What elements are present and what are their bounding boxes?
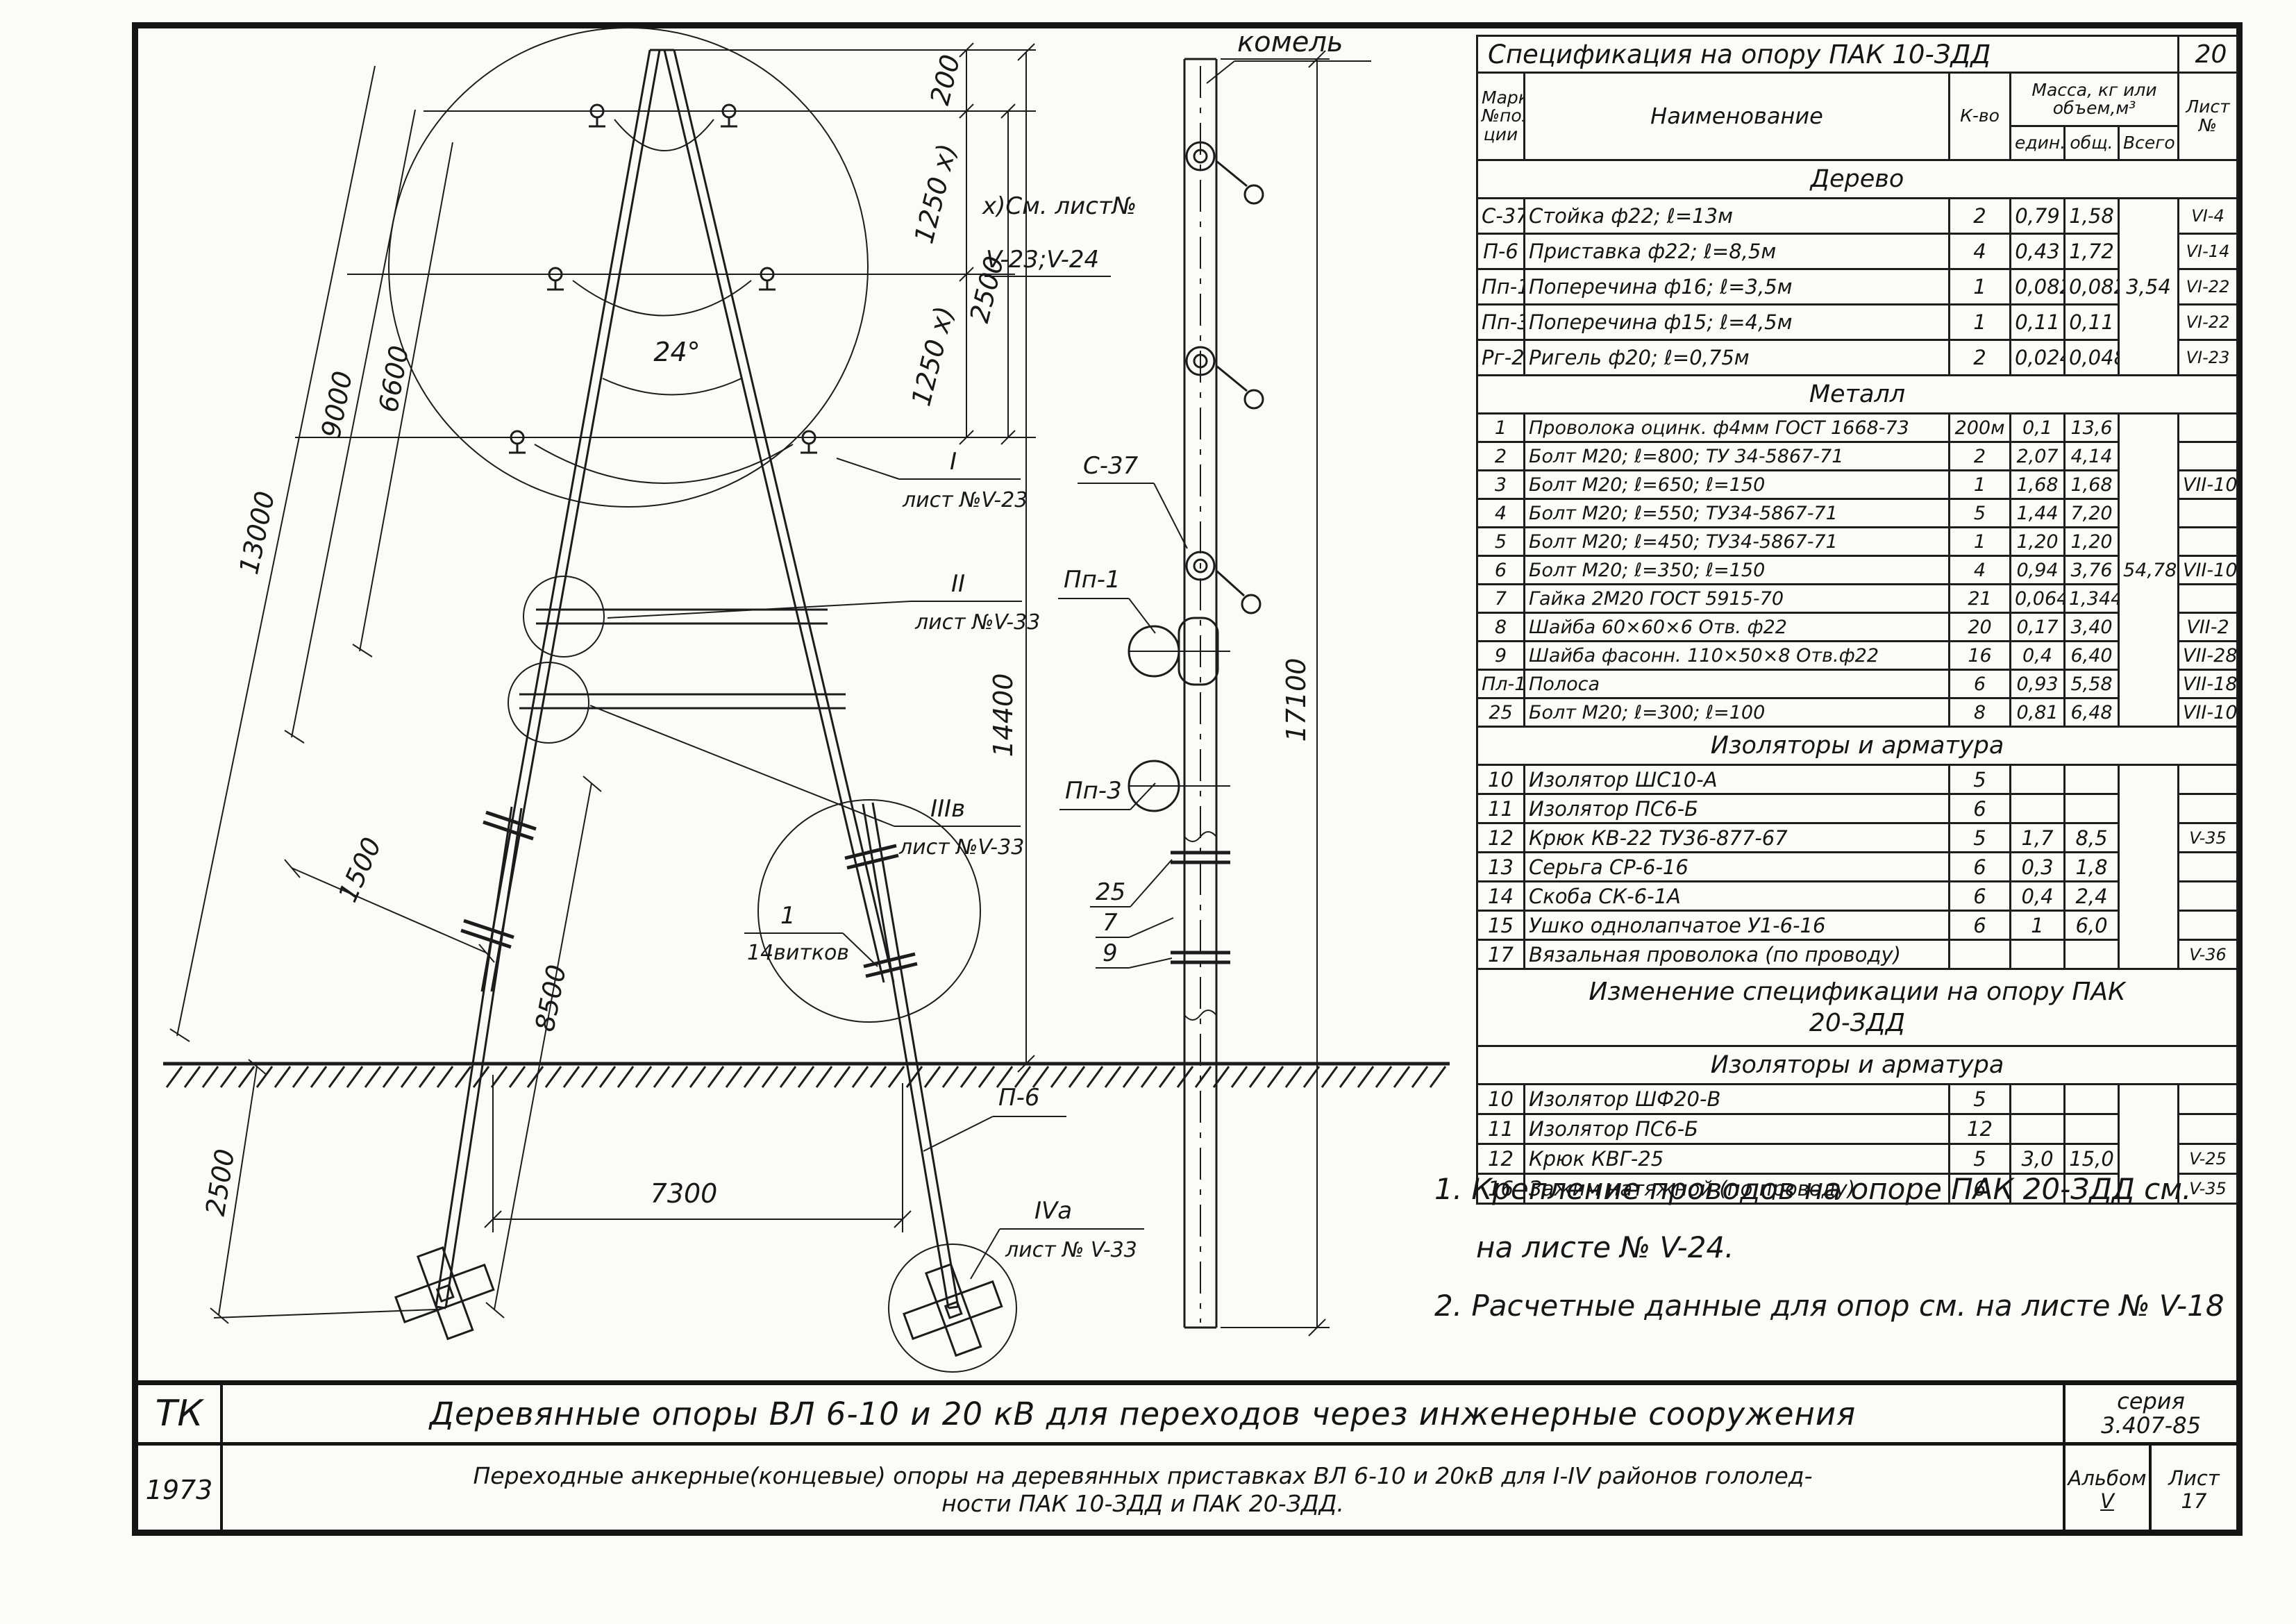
title-block: ТК Деревянные опоры ВЛ 6-10 и 20 кВ для …	[138, 1380, 2236, 1534]
label-c37: С-37	[1083, 452, 1139, 480]
cell-name: Болт М20; ℓ=300; ℓ=100	[1525, 698, 1950, 727]
cell-mark: 9	[1477, 642, 1525, 670]
cell-qty: 200м	[1950, 414, 2011, 442]
dimensions: 13000 9000 6600 200 1250 х) 1250 х) 2500…	[170, 43, 1330, 1336]
cell-mark: Пл-1	[1477, 670, 1525, 698]
angle-label: 24°	[653, 337, 700, 367]
stamp-title-line2b: ности ПАК 10-ЗДД и ПАК 20-ЗДД.	[941, 1490, 1344, 1518]
col-header-mass: Масса, кг или объем,м³	[2011, 73, 2179, 126]
cell-mark: Рг-2	[1477, 340, 1525, 376]
pos-1-note: 14витков	[747, 941, 849, 965]
cell-mass-unit: 2,07	[2011, 442, 2065, 471]
stamp-title-line2: Переходные анкерные(концевые) опоры на д…	[223, 1446, 2065, 1534]
cell-name: Поперечина ф15; ℓ=4,5м	[1525, 305, 1950, 340]
cell-mark: 13	[1477, 853, 1525, 882]
cell-mass-unit: 0,17	[2011, 613, 2065, 642]
cell-mass-total	[2065, 1114, 2119, 1144]
cell-mass-total: 4,14	[2065, 442, 2119, 471]
stamp-series: серия 3.407-85	[2065, 1385, 2236, 1442]
cell-mark: П-6	[1477, 234, 1525, 269]
series-value: 3.407-85	[2101, 1414, 2201, 1438]
cell-sheet: VI-22	[2179, 269, 2238, 305]
cell-sheet: VII-10	[2179, 556, 2238, 585]
cell-sheet: VI-14	[2179, 234, 2238, 269]
cell-mass-unit: 1,68	[2011, 471, 2065, 499]
cell-qty: 12	[1950, 1114, 2011, 1144]
cell-mass-total: 15,0	[2065, 1144, 2119, 1174]
cell-mass-total: 3,76	[2065, 556, 2119, 585]
cell-qty: 5	[1950, 765, 2011, 794]
col-header-vsego: Всего	[2119, 126, 2179, 160]
cell-qty: 8	[1950, 698, 2011, 727]
section-header: Изоляторы и арматура	[1477, 727, 2238, 765]
cell-qty: 20	[1950, 613, 2011, 642]
cell-mass-total: 6,40	[2065, 642, 2119, 670]
footnote-line2: V-23;V-24	[986, 246, 1099, 274]
callout-4-sheet: лист № V-33	[1005, 1238, 1137, 1262]
cell-mark: 11	[1477, 1114, 1525, 1144]
cell-mark: Пп-3	[1477, 305, 1525, 340]
cell-qty: 5	[1950, 823, 2011, 853]
cell-name: Полоса	[1525, 670, 1950, 698]
cell-vsego: 3,54	[2119, 199, 2179, 376]
cell-mass-total: 1,72	[2065, 234, 2119, 269]
spec-table: Спецификация на опору ПАК 10-ЗДД 20 Марк…	[1476, 35, 2238, 1205]
pos-1-label: 1	[780, 902, 796, 930]
cell-sheet	[2179, 794, 2238, 823]
pos-25-label: 25	[1096, 878, 1125, 906]
cell-mass-total: 1,344	[2065, 585, 2119, 613]
hook-bolt-icons	[1187, 142, 1263, 613]
pos-9-label: 9	[1103, 939, 1118, 967]
cell-mass-total: 1,68	[2065, 471, 2119, 499]
cell-name: Крюк КВГ-25	[1525, 1144, 1950, 1174]
cell-mass-unit: 0,064	[2011, 585, 2065, 613]
cell-name: Гайка 2М20 ГОСТ 5915-70	[1525, 585, 1950, 613]
cell-mass-unit: 0,93	[2011, 670, 2065, 698]
cell-qty: 1	[1950, 305, 2011, 340]
cell-sheet: VII-10	[2179, 698, 2238, 727]
cell-mark: Пп-1	[1477, 269, 1525, 305]
stamp-title-line1: Деревянные опоры ВЛ 6-10 и 20 кВ для пер…	[223, 1385, 2065, 1442]
cell-mass-unit: 0,11	[2011, 305, 2065, 340]
cell-mass-total	[2065, 765, 2119, 794]
album-label: Альбом	[2068, 1467, 2147, 1490]
cell-mass-total: 2,4	[2065, 882, 2119, 911]
callout-4-num: IVа	[1034, 1197, 1072, 1225]
cell-mark: 10	[1477, 765, 1525, 794]
cell-name: Ушко однолапчатое У1-6-16	[1525, 911, 1950, 940]
cell-sheet: VII-2	[2179, 613, 2238, 642]
cell-sheet: VI-23	[2179, 340, 2238, 376]
cell-qty: 2	[1950, 340, 2011, 376]
cell-mass-unit: 0,94	[2011, 556, 2065, 585]
callout-2-sheet: лист №V-33	[914, 610, 1040, 635]
table-row: С-37Стойка ф22; ℓ=13м20,791,583,54VI-4	[1477, 199, 2238, 234]
cell-qty: 5	[1950, 499, 2011, 528]
label-pp3: Пп-3	[1065, 777, 1122, 805]
notes-block: 1. Крепление проводов на опоре ПАК 20-ЗД…	[1434, 1173, 2261, 1349]
cell-qty: 4	[1950, 234, 2011, 269]
cell-qty: 6	[1950, 670, 2011, 698]
cell-name: Шайба 60×60×6 Отв. ф22	[1525, 613, 1950, 642]
cell-mass-total: 6,0	[2065, 911, 2119, 940]
stamp-album: Альбом V	[2065, 1446, 2152, 1534]
cell-mass-total: 1,58	[2065, 199, 2119, 234]
spec-title: Спецификация на опору ПАК 10-ЗДД	[1477, 36, 2179, 73]
cell-mass-total: 7,20	[2065, 499, 2119, 528]
cell-mass-unit: 1	[2011, 911, 2065, 940]
cell-name: Приставка ф22; ℓ=8,5м	[1525, 234, 1950, 269]
cell-sheet: V-36	[2179, 940, 2238, 969]
cell-sheet	[2179, 911, 2238, 940]
insulator-icons	[509, 105, 817, 453]
cell-name: Шайба фасонн. 110×50×8 Отв.ф22	[1525, 642, 1950, 670]
cell-mass-unit	[2011, 940, 2065, 969]
cell-mass-total: 8,5	[2065, 823, 2119, 853]
cell-mass-unit: 0,4	[2011, 882, 2065, 911]
cell-mark: 3	[1477, 471, 1525, 499]
cell-name: Болт М20; ℓ=350; ℓ=150	[1525, 556, 1950, 585]
cell-name: Серьга СР-6-16	[1525, 853, 1950, 882]
cell-name: Изолятор ПС6-Б	[1525, 1114, 1950, 1144]
cell-sheet	[2179, 1085, 2238, 1114]
title-block-row-2: 1973 Переходные анкерные(концевые) опоры…	[138, 1446, 2236, 1534]
cell-mass-unit: 1,44	[2011, 499, 2065, 528]
section-header-row: Изоляторы и арматура	[1477, 1046, 2238, 1085]
cell-vsego	[2119, 765, 2179, 969]
section-header-row: Металл	[1477, 376, 2238, 414]
cell-mass-unit	[2011, 1085, 2065, 1114]
cell-mass-total: 1,20	[2065, 528, 2119, 556]
cell-name: Проволока оцинк. ф4мм ГОСТ 1668-73	[1525, 414, 1950, 442]
cell-name: Изолятор ПС6-Б	[1525, 794, 1950, 823]
change-table-title-row: Изменение спецификации на опору ПАК 20-З…	[1477, 969, 2238, 1046]
cell-sheet	[2179, 853, 2238, 882]
cell-mark: 12	[1477, 1144, 1525, 1174]
callouts: х)См. лист№ V-23;V-24 I лист №V-23 II ли…	[590, 26, 1371, 1279]
cell-mass-total: 0,11	[2065, 305, 2119, 340]
callout-3-num: IIIв	[930, 795, 965, 823]
ground-line	[163, 1064, 1450, 1087]
cell-sheet	[2179, 499, 2238, 528]
cell-qty: 16	[1950, 642, 2011, 670]
cell-sheet	[2179, 585, 2238, 613]
cell-mass-unit	[2011, 1114, 2065, 1144]
cell-mark: 6	[1477, 556, 1525, 585]
label-komel: комель	[1237, 26, 1343, 58]
cell-mass-unit: 0,79	[2011, 199, 2065, 234]
cell-sheet: VII-10	[2179, 471, 2238, 499]
dim-7300-label: 7300	[651, 1178, 718, 1209]
section-header-row: Изоляторы и арматура	[1477, 727, 2238, 765]
sheet-value: 17	[2181, 1490, 2207, 1513]
dim-14400-label: 14400	[988, 673, 1019, 757]
cell-sheet: VI-22	[2179, 305, 2238, 340]
label-p6: П-6	[998, 1084, 1039, 1112]
cell-mark: 5	[1477, 528, 1525, 556]
cell-mass-total: 0,082	[2065, 269, 2119, 305]
page-number: 20	[2179, 36, 2238, 73]
dim-6600-label: 6600	[373, 343, 414, 415]
cell-mass-unit: 0,082	[2011, 269, 2065, 305]
note-2: 2. Расчетные данные для опор см. на лист…	[1434, 1290, 2261, 1322]
cell-name: Вязальная проволока (по проводу)	[1525, 940, 1950, 969]
cell-mass-total: 0,048	[2065, 340, 2119, 376]
cell-name: Болт М20; ℓ=550; ТУ34-5867-71	[1525, 499, 1950, 528]
cell-mass-unit: 0,81	[2011, 698, 2065, 727]
cell-mass-unit: 0,43	[2011, 234, 2065, 269]
drawing-sheet: { "spec_table": { "title": "Спецификация…	[0, 0, 2296, 1624]
cell-mass-total: 1,8	[2065, 853, 2119, 882]
cell-sheet	[2179, 1114, 2238, 1144]
cell-sheet: VII-18	[2179, 670, 2238, 698]
cell-sheet: V-35	[2179, 823, 2238, 853]
cell-mass-unit: 0,3	[2011, 853, 2065, 882]
cell-sheet	[2179, 882, 2238, 911]
table-row: 10Изолятор ШС10-А5	[1477, 765, 2238, 794]
cell-name: Болт М20; ℓ=650; ℓ=150	[1525, 471, 1950, 499]
cell-sheet: VI-4	[2179, 199, 2238, 234]
cell-mark: 11	[1477, 794, 1525, 823]
cell-qty	[1950, 940, 2011, 969]
table-row: 1Проволока оцинк. ф4мм ГОСТ 1668-73200м0…	[1477, 414, 2238, 442]
cell-name: Болт М20; ℓ=800; ТУ 34-5867-71	[1525, 442, 1950, 471]
section-header-row: Дерево	[1477, 160, 2238, 199]
dim-2500-left-label: 2500	[200, 1147, 241, 1218]
cell-mass-total: 3,40	[2065, 613, 2119, 642]
cell-qty: 21	[1950, 585, 2011, 613]
section-header: Металл	[1477, 376, 2238, 414]
cell-vsego: 54,78	[2119, 414, 2179, 727]
side-view	[1129, 59, 1263, 1328]
stamp-year: 1973	[138, 1446, 223, 1534]
section-header: Дерево	[1477, 160, 2238, 199]
dim-1250a-label: 1250 х)	[908, 141, 962, 246]
cell-mass-unit: 0,4	[2011, 642, 2065, 670]
cell-name: Изолятор ШФ20-В	[1525, 1085, 1950, 1114]
col-header-mark: Марка №пози- ции	[1477, 73, 1525, 160]
dim-1500-label: 1500	[332, 833, 387, 907]
cell-mark: С-37	[1477, 199, 1525, 234]
callout-3-sheet: лист №V-33	[898, 835, 1024, 860]
callout-2-num: II	[951, 570, 965, 598]
cell-mass-unit	[2011, 794, 2065, 823]
dim-17100-label: 17100	[1281, 658, 1312, 742]
cell-name: Болт М20; ℓ=450; ТУ34-5867-71	[1525, 528, 1950, 556]
cell-name: Ригель ф20; ℓ=0,75м	[1525, 340, 1950, 376]
cell-mark: 2	[1477, 442, 1525, 471]
cell-mass-total	[2065, 1085, 2119, 1114]
dim-200-label: 200	[924, 51, 966, 108]
cell-mass-total: 5,58	[2065, 670, 2119, 698]
col-header-name: Наименование	[1525, 73, 1950, 160]
anchor-plates-right	[894, 1253, 1012, 1367]
cell-qty: 6	[1950, 882, 2011, 911]
cell-mark: 10	[1477, 1085, 1525, 1114]
cell-mass-unit: 0,1	[2011, 414, 2065, 442]
cell-qty: 2	[1950, 199, 2011, 234]
cell-qty: 4	[1950, 556, 2011, 585]
dim-1250b-label: 1250 х)	[905, 303, 960, 409]
cell-sheet: V-25	[2179, 1144, 2238, 1174]
title-block-row-1: ТК Деревянные опоры ВЛ 6-10 и 20 кВ для …	[138, 1385, 2236, 1446]
cell-mass-total: 13,6	[2065, 414, 2119, 442]
anchor-plates-left	[385, 1236, 504, 1350]
cell-qty: 1	[1950, 269, 2011, 305]
cell-name: Крюк КВ-22 ТУ36-877-67	[1525, 823, 1950, 853]
cell-qty: 6	[1950, 853, 2011, 882]
front-view	[295, 28, 1016, 1372]
col-header-sheet: Лист №	[2179, 73, 2238, 160]
col-header-unit: един.	[2011, 126, 2065, 160]
series-label: серия	[2117, 1389, 2185, 1414]
section-header: Изоляторы и арматура	[1477, 1046, 2238, 1085]
album-value: V	[2100, 1490, 2114, 1513]
spec-header-row-1: Марка №пози- ции Наименование К-во Масса…	[1477, 73, 2238, 126]
cell-mass-total	[2065, 940, 2119, 969]
cell-mark: 15	[1477, 911, 1525, 940]
cell-mass-unit: 1,7	[2011, 823, 2065, 853]
cell-qty: 2	[1950, 442, 2011, 471]
cell-name: Изолятор ШС10-А	[1525, 765, 1950, 794]
cell-sheet	[2179, 765, 2238, 794]
cell-mass-unit: 0,024	[2011, 340, 2065, 376]
cell-mass-unit: 3,0	[2011, 1144, 2065, 1174]
note-1-line-1: 1. Крепление проводов на опоре ПАК 20-ЗД…	[1434, 1173, 2261, 1205]
cell-qty: 5	[1950, 1085, 2011, 1114]
cell-sheet: VII-28	[2179, 642, 2238, 670]
cell-name: Поперечина ф16; ℓ=3,5м	[1525, 269, 1950, 305]
stamp-code: ТК	[138, 1385, 223, 1442]
cell-sheet	[2179, 442, 2238, 471]
col-header-qty: К-во	[1950, 73, 2011, 160]
label-pp1: Пп-1	[1064, 566, 1121, 594]
note-1-line-2: на листе № V-24.	[1434, 1232, 2261, 1264]
cell-mark: 14	[1477, 882, 1525, 911]
stamp-title-line2a: Переходные анкерные(концевые) опоры на д…	[473, 1462, 1812, 1490]
change-table-title: Изменение спецификации на опору ПАК 20-З…	[1477, 969, 2238, 1046]
spec-title-row: Спецификация на опору ПАК 10-ЗДД 20	[1477, 36, 2238, 73]
col-header-total: общ.	[2065, 126, 2119, 160]
cell-mark: 12	[1477, 823, 1525, 853]
cell-sheet	[2179, 414, 2238, 442]
cell-mass-unit: 1,20	[2011, 528, 2065, 556]
cell-sheet	[2179, 528, 2238, 556]
dim-8500-label: 8500	[529, 962, 572, 1034]
cell-mark: 7	[1477, 585, 1525, 613]
cell-name: Стойка ф22; ℓ=13м	[1525, 199, 1950, 234]
cell-qty: 6	[1950, 911, 2011, 940]
cell-mass-total: 6,48	[2065, 698, 2119, 727]
cell-qty: 6	[1950, 794, 2011, 823]
cell-mark: 25	[1477, 698, 1525, 727]
cell-mark: 8	[1477, 613, 1525, 642]
footnote-line1: х)См. лист№	[982, 192, 1137, 220]
cell-mark: 1	[1477, 414, 1525, 442]
cell-qty: 1	[1950, 528, 2011, 556]
pos-7-label: 7	[1103, 909, 1118, 937]
callout-1-num: I	[950, 448, 957, 476]
table-row: 10Изолятор ШФ20-В5	[1477, 1085, 2238, 1114]
cell-mass-unit	[2011, 765, 2065, 794]
cell-mark: 17	[1477, 940, 1525, 969]
cell-qty: 1	[1950, 471, 2011, 499]
stamp-sheet: Лист 17	[2152, 1446, 2236, 1534]
cell-qty: 5	[1950, 1144, 2011, 1174]
cell-mass-total	[2065, 794, 2119, 823]
cell-mark: 4	[1477, 499, 1525, 528]
sheet-label: Лист	[2168, 1467, 2220, 1490]
cell-name: Скоба СК-6-1А	[1525, 882, 1950, 911]
callout-1-sheet: лист №V-23	[902, 488, 1028, 512]
